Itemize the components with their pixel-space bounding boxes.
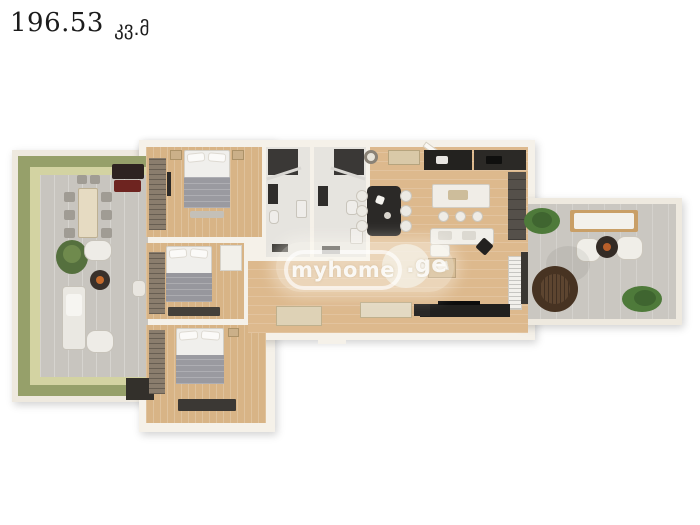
bedroom-2-rug: [168, 307, 220, 316]
bedroom-3-wardrobe: [149, 330, 165, 394]
bedroom-2-closet: [220, 245, 242, 271]
bedroom-1-pillow: [208, 152, 227, 163]
terrace-lounge-chair: [86, 330, 114, 353]
bathroom-1-mat: [272, 244, 288, 252]
bedroom-2-wardrobe: [149, 252, 165, 314]
bathroom-1-sink: [296, 200, 307, 218]
bedroom-1-blanket: [184, 177, 230, 208]
bathroom-2-mat: [322, 246, 340, 254]
terrace-chair: [90, 175, 100, 184]
bathroom-1-vanity: [268, 184, 278, 204]
terrace-stool: [132, 280, 146, 297]
dining-table: [367, 186, 401, 236]
dining-chair: [356, 205, 368, 217]
bedroom-1-bench: [190, 211, 224, 218]
bedroom-3-pillow: [179, 330, 199, 341]
dining-chair: [356, 190, 368, 202]
kitchen-island-decor: [448, 190, 468, 200]
terrace-chair: [64, 192, 75, 202]
dining-chair: [400, 205, 412, 217]
terrace-sofa-cushion: [66, 294, 82, 316]
kitchen-counter: [424, 150, 472, 170]
bedroom-3-pillow: [201, 330, 221, 341]
bedroom-2-pillow: [190, 248, 209, 259]
hallway-cabinet: [360, 302, 412, 318]
kitchen-stool: [438, 211, 449, 222]
bedroom-1-pillow: [187, 152, 206, 163]
bedroom-3-nightstand: [228, 328, 239, 337]
floorplan: [0, 0, 700, 525]
terrace-lounge-chair: [84, 240, 112, 261]
terrace-bbq-set: [112, 164, 144, 179]
kitchen-stool: [472, 211, 483, 222]
floor-plan-page: 196.53 კვ.მ myhome .ge: [0, 0, 700, 525]
terrace-fire-pit-flame: [96, 276, 104, 284]
exterior-step: [318, 333, 346, 344]
hallway-cabinet: [276, 306, 322, 326]
terrace-dining-table: [78, 188, 98, 238]
right-terrace-cocoon-weave: [540, 274, 570, 304]
dining-chair: [400, 190, 412, 202]
entry-console: [388, 150, 420, 165]
kitchen-tall-cabinet: [508, 172, 526, 240]
terrace-bbq-set-red: [114, 180, 141, 192]
living-tv-console: [420, 304, 510, 317]
bedroom-1-wardrobe: [149, 158, 166, 230]
bedroom-2-blanket: [166, 273, 212, 302]
living-sofa-cushion: [462, 231, 476, 240]
dining-chair: [400, 220, 412, 232]
living-sofa-chaise: [430, 244, 450, 257]
right-terrace-bush-dark: [532, 212, 552, 228]
entry-mirror: [364, 150, 378, 164]
right-terrace-bush-dark: [634, 290, 656, 306]
right-terrace-bench-cushion: [574, 213, 634, 229]
living-desk-chair: [416, 262, 427, 273]
terrace-chair: [77, 175, 87, 184]
terrace-chair: [101, 192, 112, 202]
living-tv: [438, 301, 480, 305]
bedroom-2-pillow: [169, 248, 188, 259]
bedroom-3-blanket: [176, 355, 224, 384]
bedroom-1-nightstand: [232, 150, 244, 160]
terrace-chair: [64, 210, 75, 220]
living-radiator: [508, 256, 522, 310]
living-balcony-door: [521, 252, 528, 304]
bathroom-1-toilet: [269, 210, 279, 224]
hallway-dark-unit: [414, 304, 430, 316]
right-terrace-fire-pit-flame: [603, 243, 611, 251]
bedroom-3-rug: [178, 399, 236, 411]
terrace-chair: [64, 228, 75, 238]
kitchen-hob: [486, 156, 502, 164]
bathroom-2-vanity: [318, 186, 328, 206]
living-sofa-cushion: [438, 231, 452, 240]
kitchen-sink: [436, 156, 448, 164]
dining-chair: [356, 220, 368, 232]
terrace-chair: [101, 210, 112, 220]
terrace-chair: [101, 228, 112, 238]
kitchen-stool: [455, 211, 466, 222]
right-terrace-armchair: [616, 236, 643, 260]
bedroom-1-nightstand: [170, 150, 182, 160]
dining-plate: [384, 212, 391, 219]
terrace-plant-highlight: [63, 245, 81, 263]
bedroom-1-tv-panel: [167, 172, 171, 196]
